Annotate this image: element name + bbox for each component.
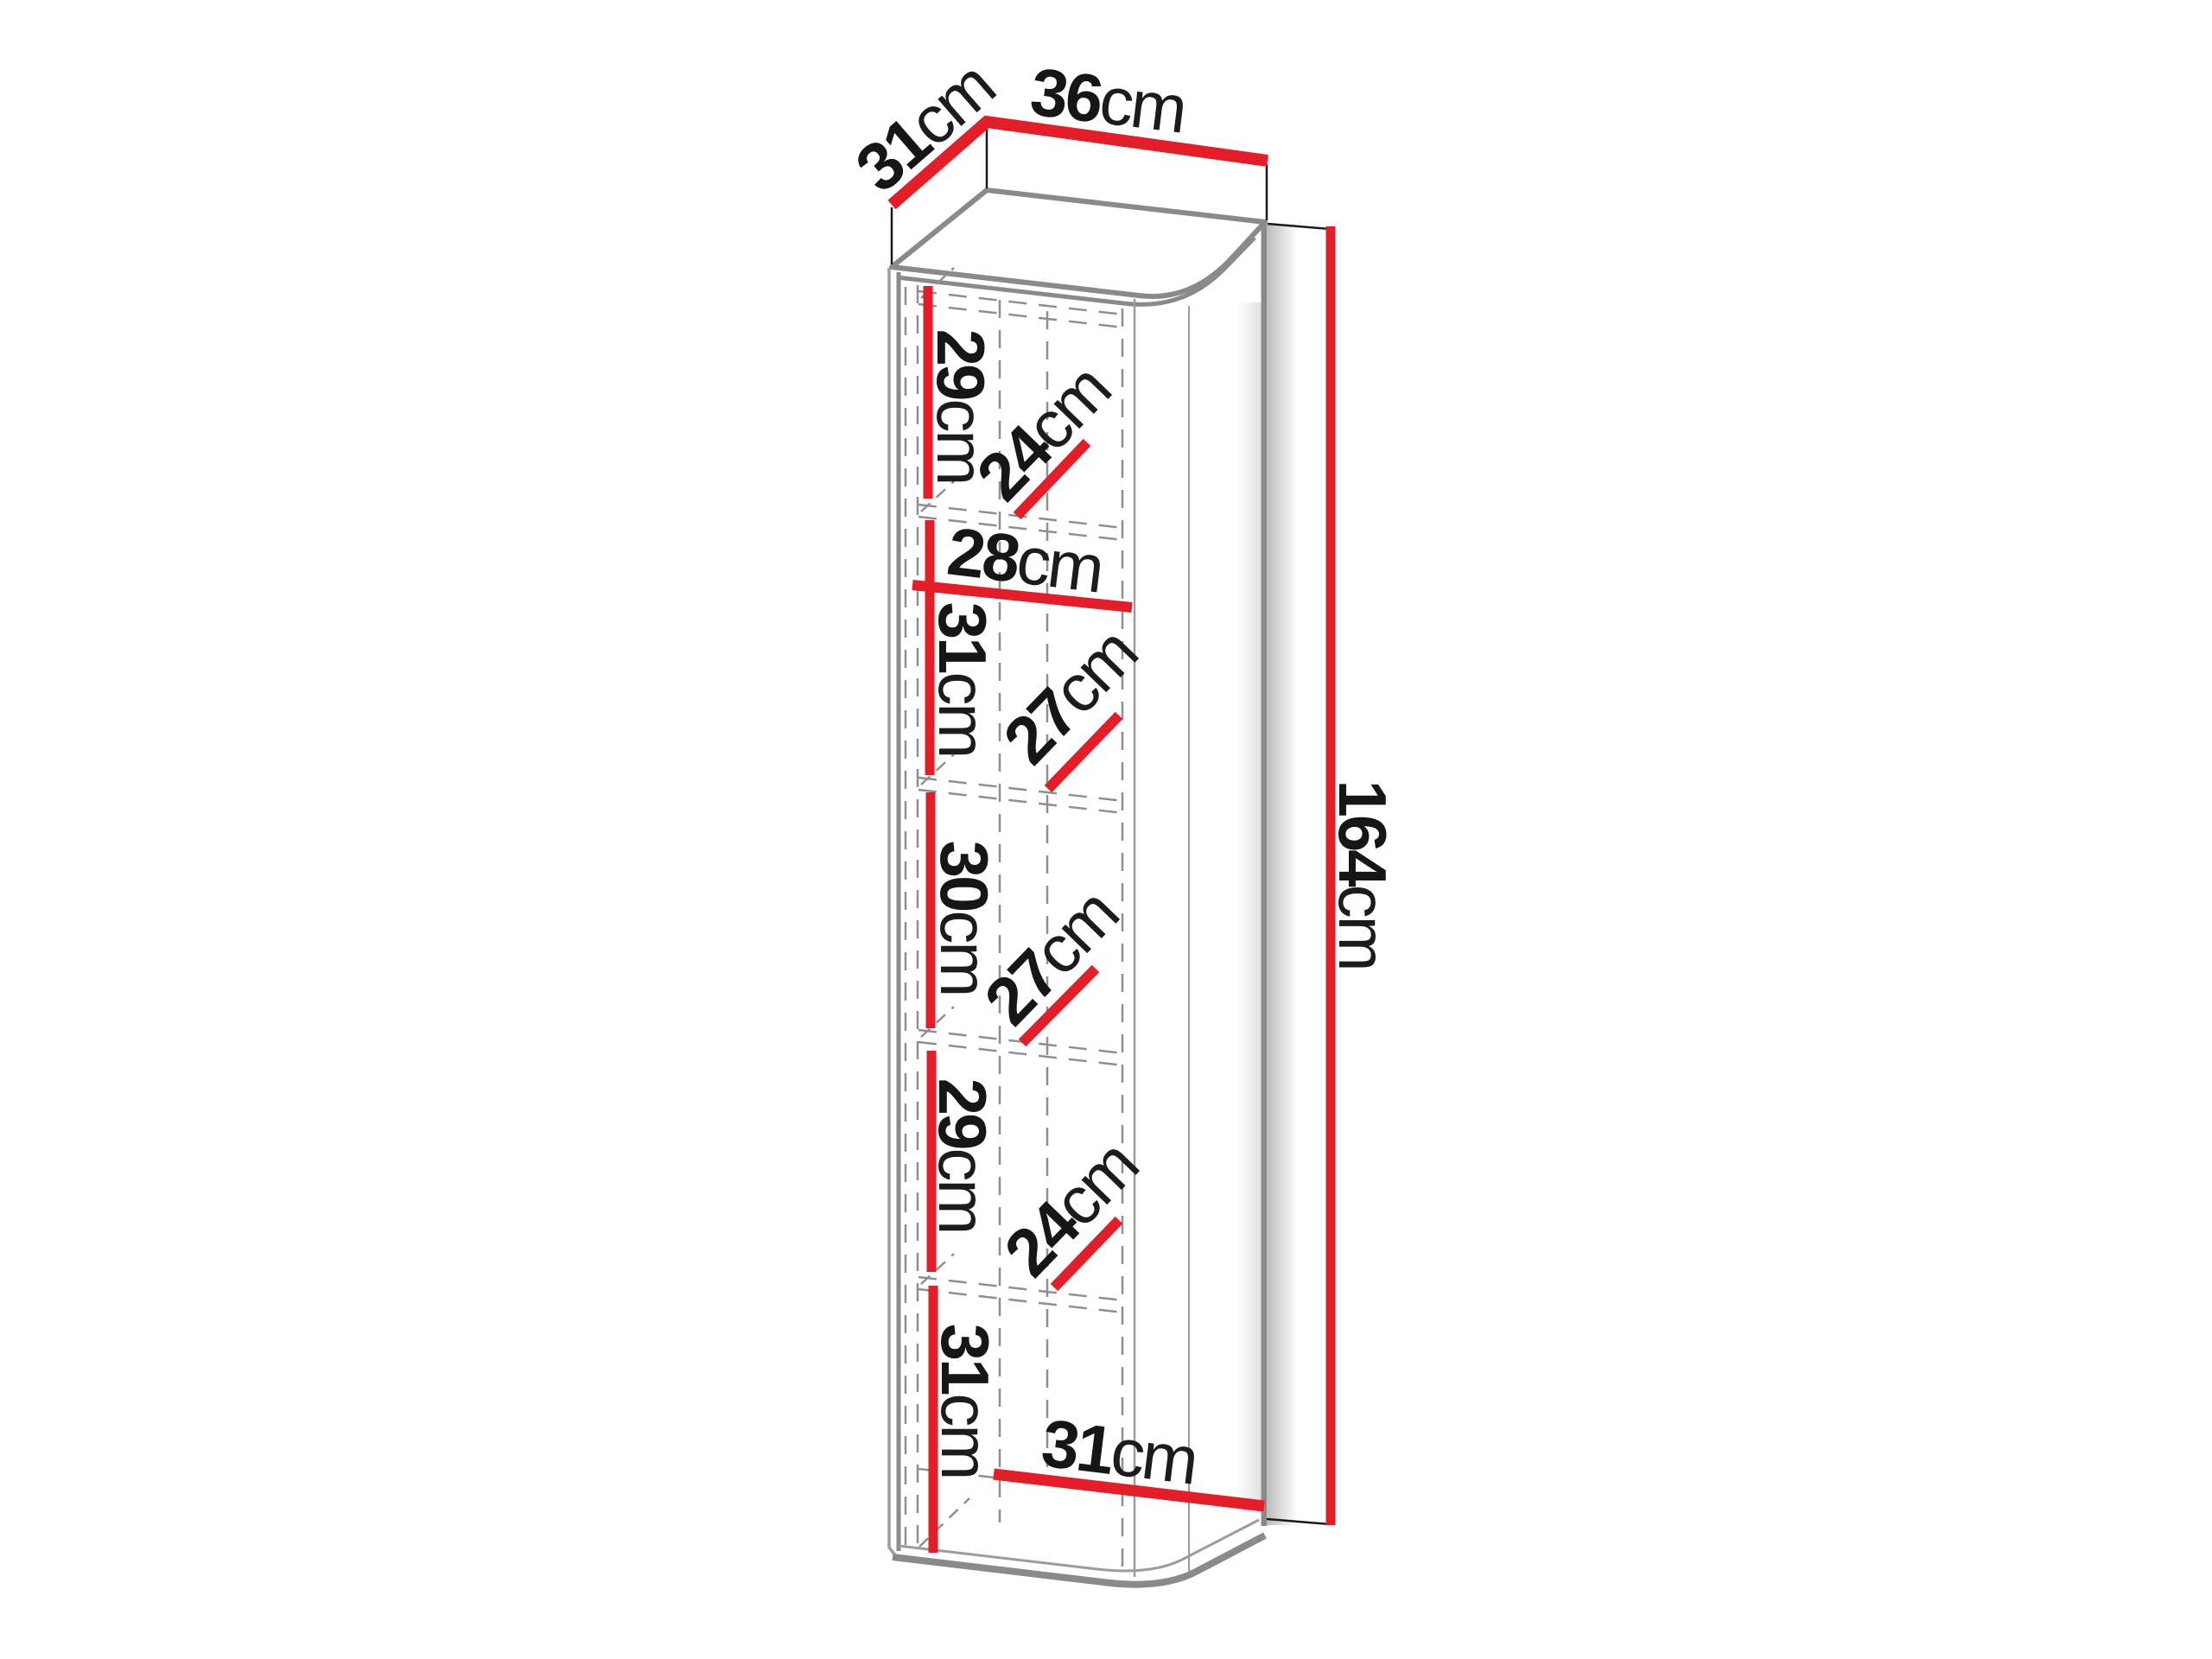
diagram-stage: 31cm 36cm 164cm 29cm 24cm 28cm 31cm 27cm… xyxy=(0,0,2212,1659)
hidden-shelf3-edge-2 xyxy=(918,1042,1123,1065)
hidden-shelf4-edge-1 xyxy=(918,1277,1123,1300)
cabinet-bottom-outer-edge xyxy=(893,1535,1265,1585)
hidden-depth-stub-shelf4 xyxy=(921,1254,954,1284)
hidden-shelf4-edge-2 xyxy=(918,1289,1123,1313)
hidden-shelf2-edge-1 xyxy=(918,778,1123,801)
label-compartment5-height: 31cm xyxy=(927,1324,1003,1478)
label-overall-height: 164cm xyxy=(1325,779,1401,969)
hidden-depth-stub-bottom xyxy=(919,1498,969,1547)
label-compartment2-depth: 27cm xyxy=(988,614,1150,779)
hidden-top-panel-edge-2 xyxy=(918,304,1123,327)
right-corner-shading-outer xyxy=(1268,225,1297,1525)
right-corner-shading-inner xyxy=(1237,302,1263,1512)
hidden-shelf2-edge-2 xyxy=(918,790,1123,813)
label-compartment4-height: 29cm xyxy=(925,1078,1001,1233)
hidden-top-panel-edge-1 xyxy=(918,291,1123,315)
label-compartment2-height: 31cm xyxy=(925,602,1001,757)
cabinet-dimension-diagram: 31cm 36cm 164cm 29cm 24cm 28cm 31cm 27cm… xyxy=(0,0,2212,1659)
